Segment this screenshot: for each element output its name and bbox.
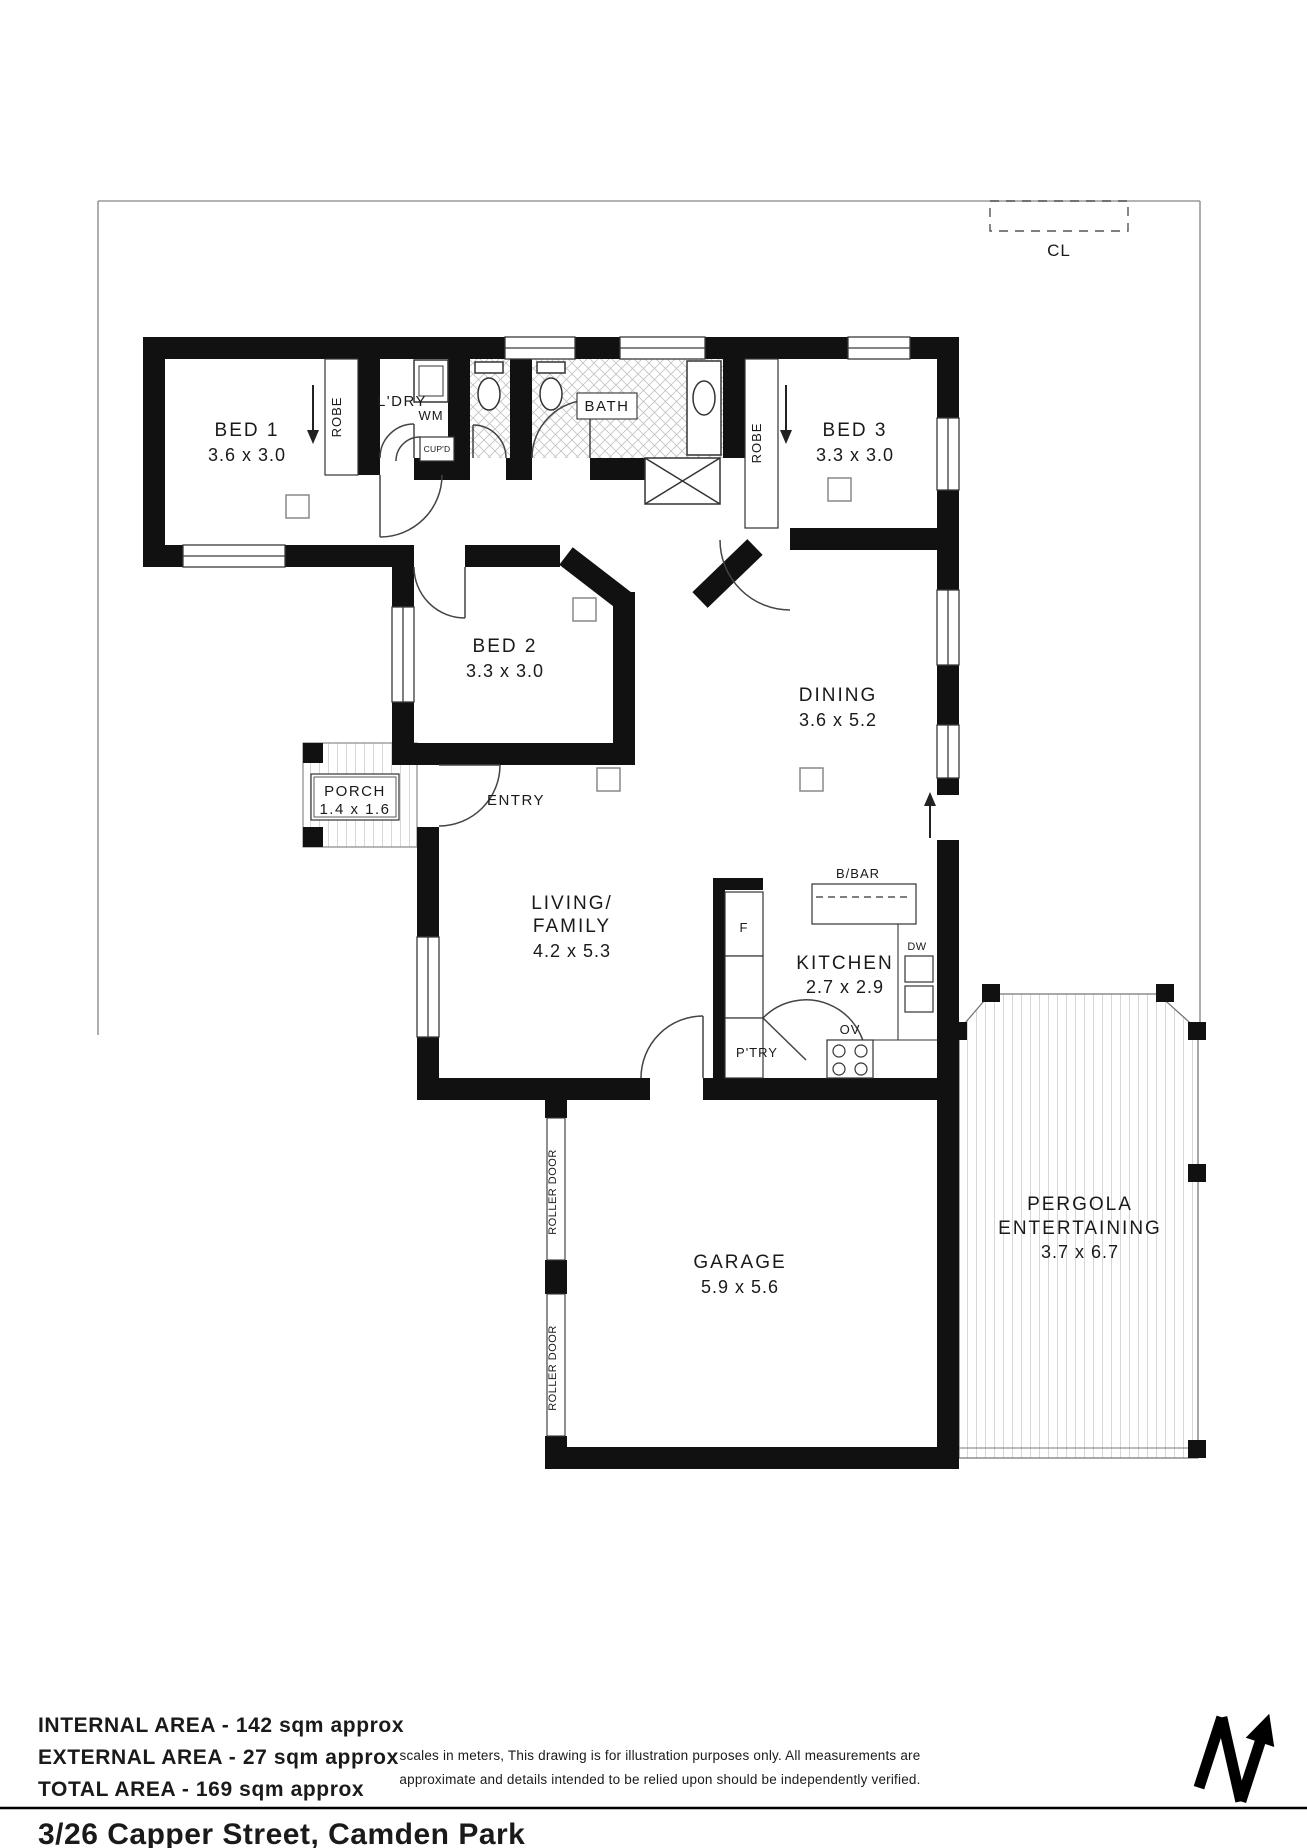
north-arrow-icon <box>1199 1700 1284 1806</box>
bath-vanity <box>687 361 721 455</box>
living-label1: LIVING/ <box>531 893 613 914</box>
light-square <box>828 478 851 501</box>
robe3-arrow <box>780 385 792 444</box>
bbar-label: B/BAR <box>836 866 880 881</box>
living-dims: 4.2 x 5.3 <box>533 941 611 961</box>
window <box>848 337 910 359</box>
roller-door-label-1: ROLLER DOOR <box>547 1149 559 1235</box>
pergola-label1: PERGOLA <box>1027 1194 1133 1215</box>
window <box>937 725 959 778</box>
light-square <box>800 768 823 791</box>
kitchen-dims: 2.7 x 2.9 <box>806 977 884 997</box>
window <box>620 337 705 359</box>
fixtures <box>311 359 937 1436</box>
robe1-label: ROBE <box>329 397 344 438</box>
porch-label: PORCH <box>324 783 386 800</box>
dining-label: DINING <box>799 685 878 706</box>
total-area: TOTAL AREA - 169 sqm approx <box>38 1778 364 1801</box>
bed2-dims: 3.3 x 3.0 <box>466 661 544 681</box>
wm-label: WM <box>418 408 443 423</box>
robe1-arrow <box>307 385 319 444</box>
porch-dims: 1.4 x 1.6 <box>319 801 390 818</box>
garage-label: GARAGE <box>693 1252 786 1273</box>
light-square <box>573 598 596 621</box>
light-square <box>597 768 620 791</box>
floorplan-page: CL <box>0 0 1307 1848</box>
footer: INTERNAL AREA - 142 sqm approx EXTERNAL … <box>0 1714 1307 1848</box>
window <box>183 545 285 567</box>
floorplan-drawing: CL <box>0 0 1307 1848</box>
bed2-label: BED 2 <box>473 636 538 657</box>
light-square <box>286 495 309 518</box>
dining-door-arrow <box>924 792 936 838</box>
toilet <box>475 362 503 410</box>
dw-label: DW <box>907 941 926 953</box>
breakfast-bar-bench <box>812 884 916 924</box>
oven-cooktop <box>827 1040 873 1078</box>
bed1-label: BED 1 <box>215 420 280 441</box>
dishwasher-unit <box>905 956 933 1012</box>
internal-area: INTERNAL AREA - 142 sqm approx <box>38 1714 404 1737</box>
bath-label: BATH <box>585 398 630 415</box>
bed3-label: BED 3 <box>823 420 888 441</box>
disclaimer-line2: approximate and details intended to be r… <box>399 1772 920 1787</box>
robe3-label: ROBE <box>749 423 764 464</box>
oven-label: OV <box>840 1022 861 1037</box>
property-boundary <box>98 201 1200 1035</box>
dining-dims: 3.6 x 5.2 <box>799 710 877 730</box>
entry-label: ENTRY <box>487 792 545 809</box>
cupd-label: CUP'D <box>424 444 451 454</box>
linen-press <box>645 458 720 504</box>
clothesline-label: CL <box>1047 241 1071 260</box>
window <box>937 590 959 665</box>
bed1-dims: 3.6 x 3.0 <box>208 445 286 465</box>
window <box>392 607 414 702</box>
disclaimer-line1: scales in meters, This drawing is for il… <box>400 1748 921 1763</box>
kitchen-label: KITCHEN <box>796 953 893 974</box>
fridge-label: F <box>740 920 749 935</box>
clothesline: CL <box>990 201 1128 260</box>
living-label2: FAMILY <box>533 916 611 937</box>
toilet <box>537 362 565 410</box>
window <box>937 418 959 490</box>
bed3-dims: 3.3 x 3.0 <box>816 445 894 465</box>
pantry-label: P'TRY <box>736 1045 778 1060</box>
pergola-label2: ENTERTAINING <box>998 1218 1162 1239</box>
external-area: EXTERNAL AREA - 27 sqm approx <box>38 1746 399 1769</box>
window <box>417 937 439 1037</box>
garage-dims: 5.9 x 5.6 <box>701 1277 779 1297</box>
window <box>505 337 575 359</box>
roller-door-label-2: ROLLER DOOR <box>547 1325 559 1411</box>
pergola-dims: 3.7 x 6.7 <box>1041 1242 1119 1262</box>
address: 3/26 Capper Street, Camden Park <box>38 1818 525 1848</box>
